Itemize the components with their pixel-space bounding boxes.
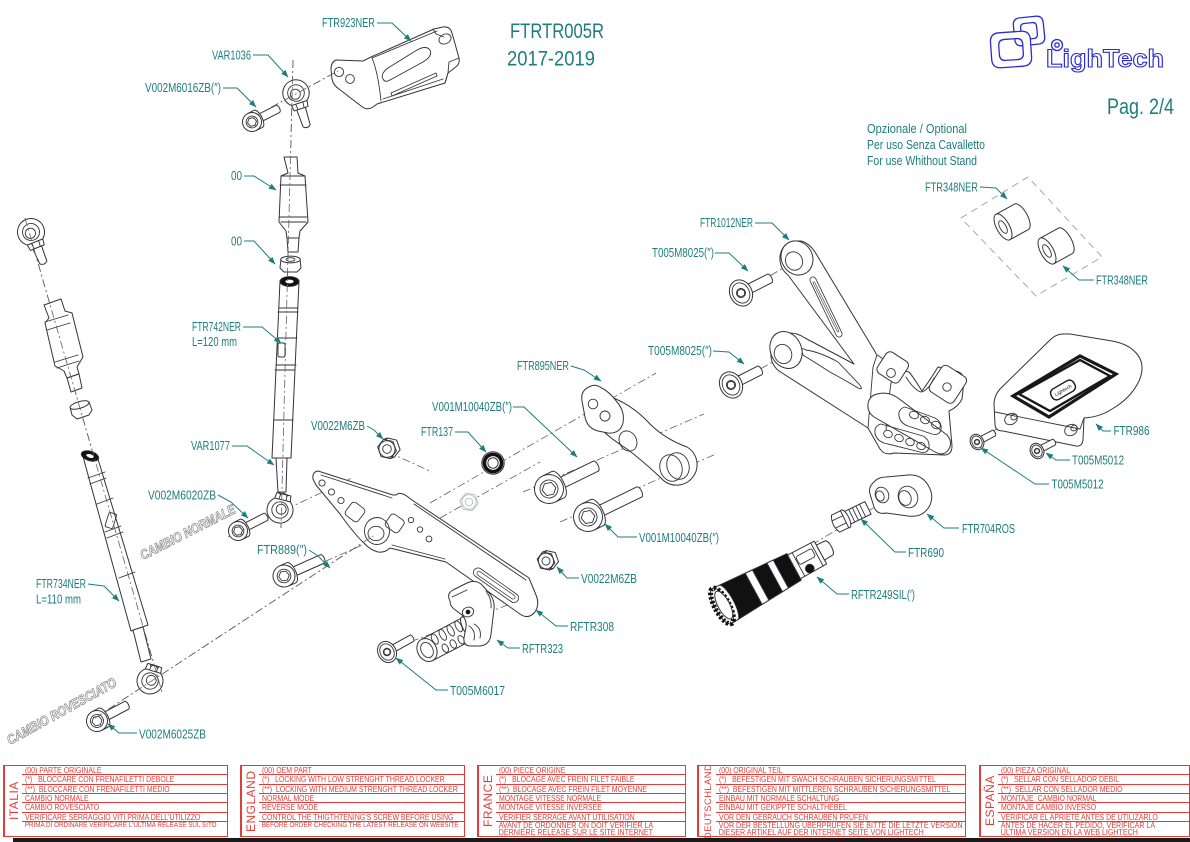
svg-text:RFTR323: RFTR323	[522, 641, 563, 656]
svg-text:V002M6016ZB(″): V002M6016ZB(″)	[145, 80, 221, 95]
svg-text:FTRTR005R: FTRTR005R	[510, 20, 604, 43]
svg-text:V002M6025ZB: V002M6025ZB	[139, 727, 206, 742]
svg-text:T005M5012: T005M5012	[1072, 453, 1124, 468]
svg-text:V0022M6ZB: V0022M6ZB	[311, 418, 365, 433]
svg-text:T005M6017: T005M6017	[450, 683, 505, 698]
svg-text:T005M5012: T005M5012	[1052, 477, 1104, 492]
svg-text:Per uso Senza Cavalletto: Per uso Senza Cavalletto	[867, 138, 985, 152]
svg-text:FTR137: FTR137	[421, 424, 453, 439]
svg-text:FTR923NER: FTR923NER	[322, 15, 375, 30]
svg-text:RFTR308: RFTR308	[570, 619, 614, 634]
svg-text:T005M8025(″): T005M8025(″)	[652, 245, 714, 260]
svg-text:Opzionale / Optional: Opzionale / Optional	[867, 122, 967, 136]
svg-text:FTR690: FTR690	[908, 545, 944, 560]
svg-text:FTR704ROS: FTR704ROS	[962, 521, 1015, 536]
svg-text:FTR742NER: FTR742NER	[192, 319, 241, 334]
svg-text:FTR895NER: FTR895NER	[517, 358, 569, 373]
svg-text:FTR348NER: FTR348NER	[1096, 273, 1148, 288]
svg-text:Pag. 2/4: Pag. 2/4	[1107, 94, 1174, 119]
svg-text:L=120 mm: L=120 mm	[192, 334, 237, 349]
svg-text:V001M10040ZB(″): V001M10040ZB(″)	[432, 399, 512, 414]
svg-text:VAR1077: VAR1077	[191, 438, 230, 453]
svg-text:L=110 mm: L=110 mm	[36, 592, 81, 607]
svg-text:FTR986: FTR986	[1114, 423, 1150, 438]
svg-text:00: 00	[231, 234, 242, 249]
svg-text:FTR1012NER: FTR1012NER	[700, 215, 753, 230]
svg-text:VAR1036: VAR1036	[212, 48, 251, 63]
svg-text:V002M6020ZB: V002M6020ZB	[148, 488, 216, 503]
svg-text:2017-2019: 2017-2019	[507, 48, 595, 71]
svg-text:FTR348NER: FTR348NER	[925, 180, 978, 195]
svg-text:FTR889(″): FTR889(″)	[257, 542, 307, 557]
svg-text:V0022M6ZB: V0022M6ZB	[581, 571, 637, 586]
svg-text:RFTR249SIL(′): RFTR249SIL(′)	[851, 587, 915, 602]
svg-text:T005M8025(″): T005M8025(″)	[648, 343, 712, 358]
svg-text:00: 00	[231, 168, 242, 183]
svg-text:LighTech: LighTech	[1046, 45, 1164, 73]
svg-text:V001M10040ZB(″): V001M10040ZB(″)	[639, 530, 719, 545]
svg-text:FTR734NER: FTR734NER	[36, 576, 86, 591]
svg-text:For use Whithout Stand: For use Whithout Stand	[867, 154, 977, 168]
